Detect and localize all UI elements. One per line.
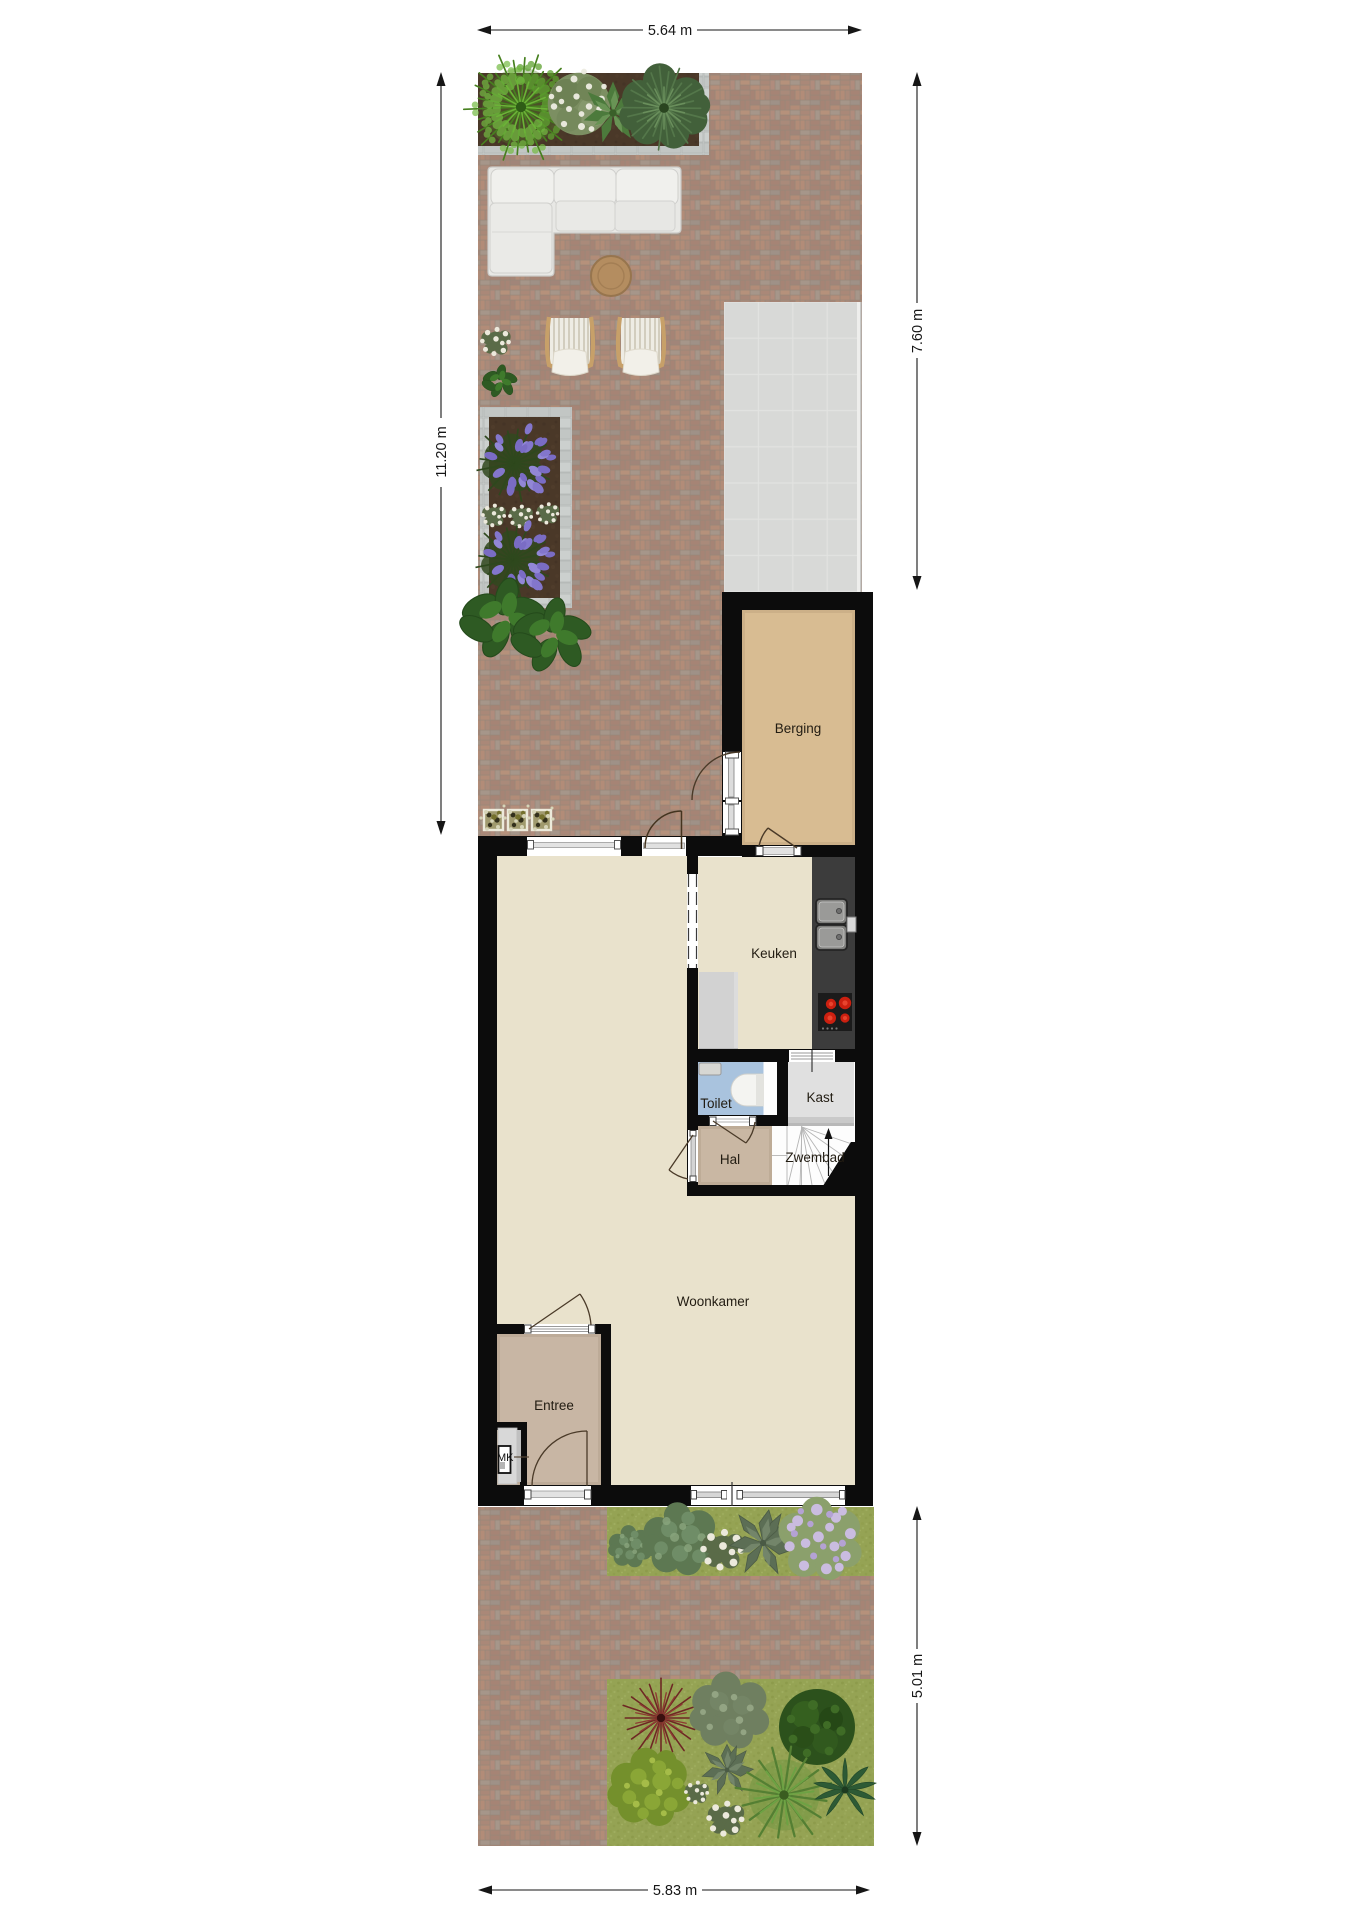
svg-text:5.01 m: 5.01 m	[910, 1654, 926, 1698]
svg-text:Berging: Berging	[775, 721, 822, 736]
svg-text:Keuken: Keuken	[751, 946, 797, 961]
svg-text:11.20 m: 11.20 m	[434, 426, 450, 477]
svg-text:Entree: Entree	[534, 1398, 574, 1413]
svg-text:5.64 m: 5.64 m	[648, 23, 692, 39]
svg-text:7.60 m: 7.60 m	[910, 309, 926, 353]
svg-text:Woonkamer: Woonkamer	[677, 1294, 750, 1309]
svg-text:Kast: Kast	[806, 1090, 833, 1105]
svg-text:5.83 m: 5.83 m	[653, 1883, 697, 1899]
svg-text:Toilet: Toilet	[700, 1096, 732, 1111]
svg-text:Hal: Hal	[720, 1152, 740, 1167]
svg-text:Zwembad: Zwembad	[785, 1150, 844, 1165]
svg-text:MK: MK	[497, 1452, 514, 1464]
